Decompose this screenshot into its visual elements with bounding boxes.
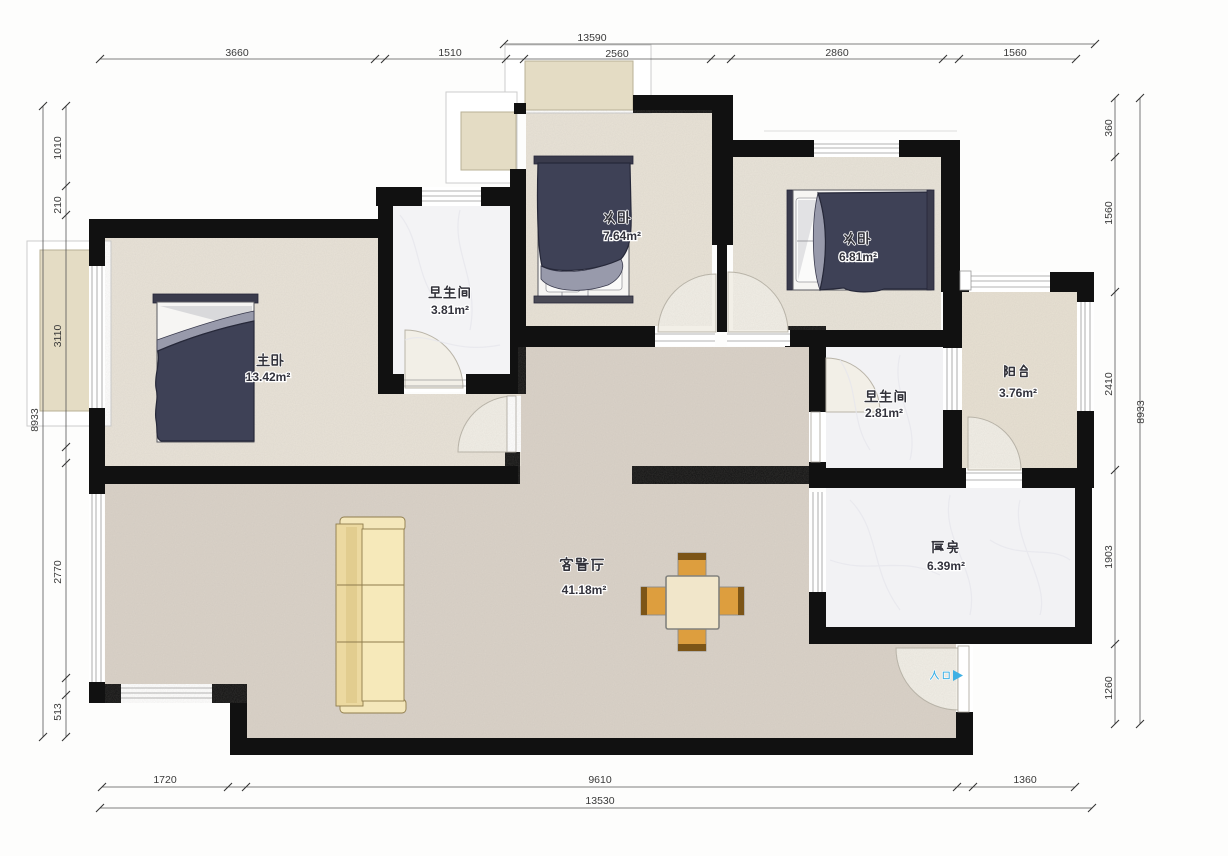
svg-text:1903: 1903 bbox=[1103, 545, 1115, 569]
svg-text:8933: 8933 bbox=[1135, 400, 1147, 424]
svg-text:2860: 2860 bbox=[825, 47, 849, 59]
svg-text:41.18m²: 41.18m² bbox=[562, 583, 607, 597]
svg-text:6.39m²: 6.39m² bbox=[927, 559, 965, 573]
svg-text:360: 360 bbox=[1103, 119, 1115, 137]
svg-text:3660: 3660 bbox=[225, 47, 249, 59]
svg-text:3.81m²: 3.81m² bbox=[431, 303, 469, 317]
svg-text:3110: 3110 bbox=[52, 325, 64, 348]
svg-text:1510: 1510 bbox=[438, 47, 462, 59]
svg-text:13.42m²: 13.42m² bbox=[246, 370, 291, 384]
svg-text:2560: 2560 bbox=[605, 48, 629, 60]
svg-text:9610: 9610 bbox=[588, 774, 612, 786]
svg-text:513: 513 bbox=[52, 703, 64, 721]
svg-text:1560: 1560 bbox=[1103, 201, 1115, 225]
svg-text:2770: 2770 bbox=[52, 560, 64, 584]
svg-text:2410: 2410 bbox=[1103, 372, 1115, 396]
svg-text:7.64m²: 7.64m² bbox=[603, 229, 641, 243]
svg-text:6.81m²: 6.81m² bbox=[839, 250, 877, 264]
svg-text:1560: 1560 bbox=[1003, 47, 1027, 59]
svg-text:2.81m²: 2.81m² bbox=[865, 406, 903, 420]
svg-text:13590: 13590 bbox=[577, 32, 606, 44]
svg-text:8933: 8933 bbox=[29, 408, 41, 432]
svg-text:1260: 1260 bbox=[1103, 676, 1115, 700]
svg-text:3.76m²: 3.76m² bbox=[999, 386, 1037, 400]
svg-text:13530: 13530 bbox=[585, 795, 614, 807]
svg-text:1010: 1010 bbox=[52, 136, 64, 160]
svg-text:1720: 1720 bbox=[153, 774, 177, 786]
svg-text:210: 210 bbox=[52, 196, 64, 214]
svg-text:1360: 1360 bbox=[1013, 774, 1037, 786]
